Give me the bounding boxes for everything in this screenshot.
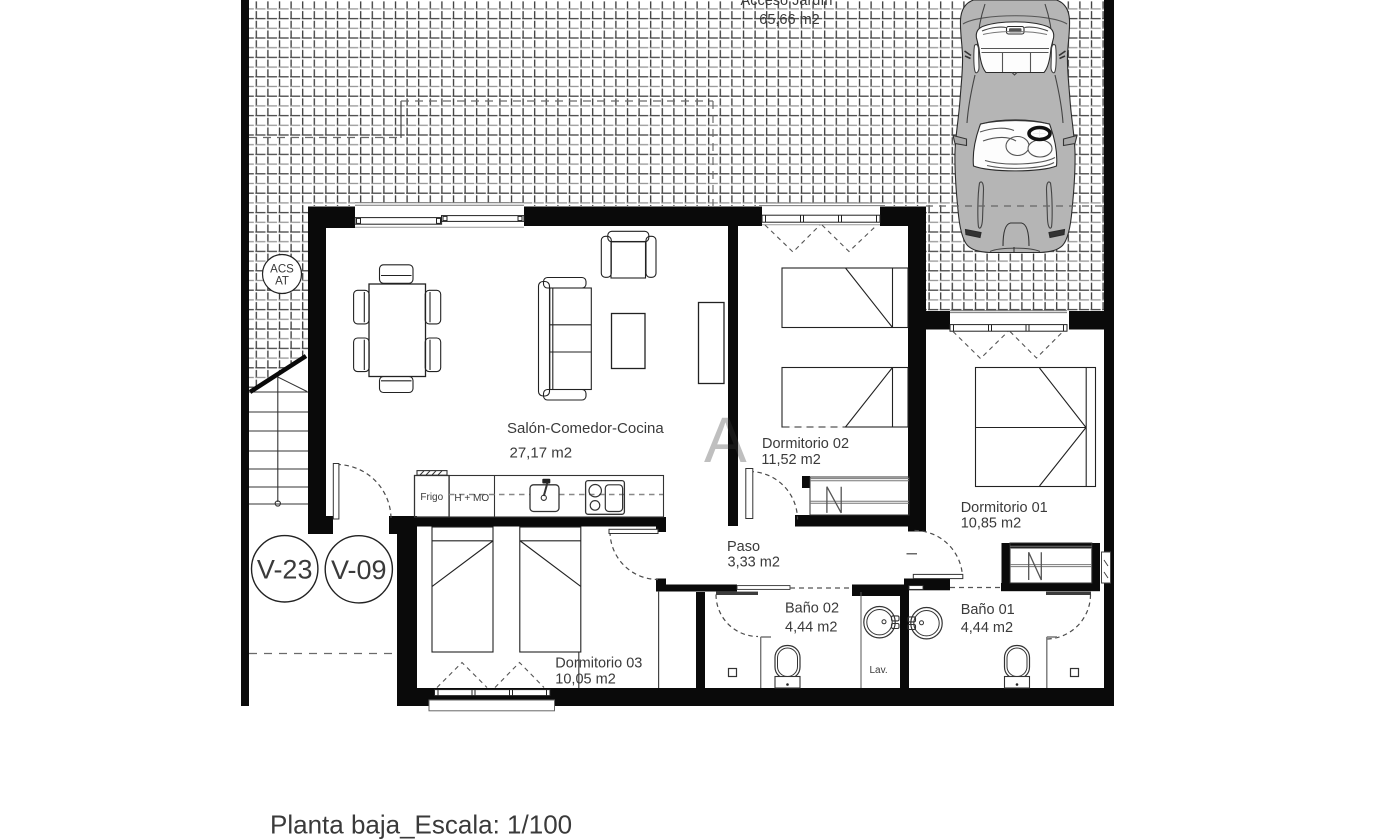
svg-text:Frigo: Frigo: [420, 492, 443, 503]
svg-text:11,52 m2: 11,52 m2: [761, 452, 820, 468]
svg-text:Salón-Comedor-Cocina: Salón-Comedor-Cocina: [507, 420, 664, 437]
svg-text:Dormitorio 01: Dormitorio 01: [961, 500, 1048, 516]
svg-text:3,33 m2: 3,33 m2: [728, 555, 780, 571]
svg-text:A: A: [704, 404, 747, 476]
svg-text:4,44 m2: 4,44 m2: [785, 620, 837, 636]
svg-text:ACS: ACS: [270, 264, 294, 276]
svg-text:Acceso Jardín: Acceso Jardín: [741, 0, 833, 9]
svg-text:Dormitorio 02: Dormitorio 02: [762, 436, 849, 452]
svg-text:Lav.: Lav.: [870, 665, 888, 676]
svg-text:Planta baja_Escala: 1/100: Planta baja_Escala: 1/100: [270, 810, 572, 840]
svg-text:Dormitorio 03: Dormitorio 03: [555, 656, 642, 672]
svg-text:V-23: V-23: [257, 554, 313, 584]
svg-text:AT: AT: [275, 276, 289, 288]
svg-text:10,85 m2: 10,85 m2: [961, 516, 1021, 532]
svg-text:10,05 m2: 10,05 m2: [555, 671, 615, 687]
svg-text:Baño 01: Baño 01: [961, 602, 1015, 618]
svg-text:4,44 m2: 4,44 m2: [961, 620, 1013, 636]
svg-text:27,17 m2: 27,17 m2: [510, 445, 573, 462]
svg-text:H + MO: H + MO: [454, 493, 489, 504]
svg-text:V-09: V-09: [331, 555, 387, 585]
svg-text:Baño 02: Baño 02: [785, 601, 839, 617]
svg-text:65,66 m2: 65,66 m2: [759, 12, 819, 28]
svg-text:Paso: Paso: [727, 539, 760, 555]
